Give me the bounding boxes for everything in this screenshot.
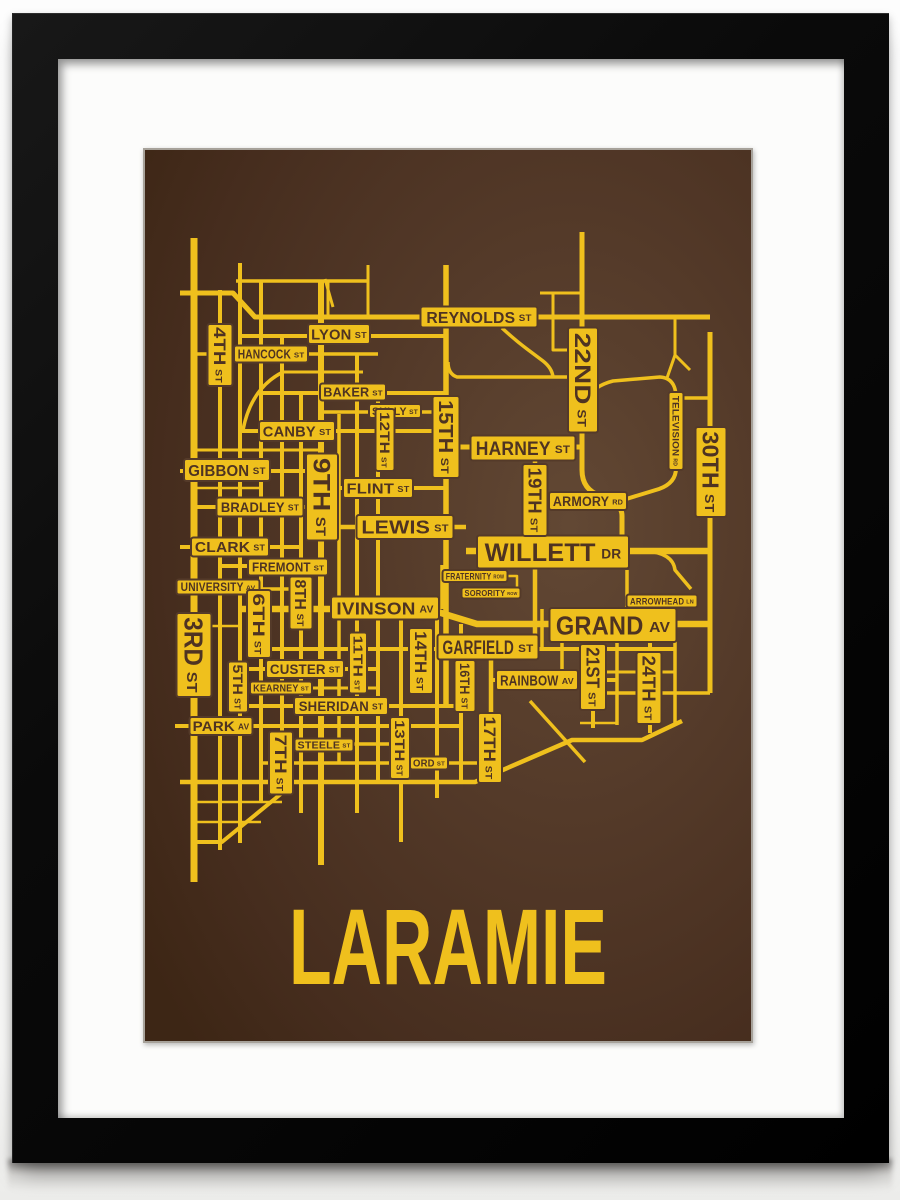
street-label-armory-rd: ARMORYRD (549, 492, 627, 510)
street-label-21st-st: 21STST (580, 644, 606, 710)
street-label-4th-st: 4THST (208, 324, 233, 386)
street-label-bradley-st: BRADLEYST (217, 498, 304, 517)
street-label-9th-st: 9THST (306, 454, 338, 541)
street-label-flint-st: FLINTST (343, 478, 413, 498)
street-label-22nd-st: 22NDST (568, 328, 598, 433)
street-label-baker-st: BAKERST (320, 384, 386, 401)
street-label-30th-st: 30THST (696, 427, 727, 517)
street-label-garfield-st: GARFIELDST (438, 635, 539, 660)
street-label-sorority-row: SORORITYROW (462, 588, 521, 599)
street-label-sheridan-st: SHERIDANST (294, 697, 388, 715)
street-label-arrowhead-ln: ARROWHEADLN (627, 595, 698, 608)
street-label-7th-st: 7THST (269, 732, 293, 795)
street-label-harney-st: HARNEYST (471, 436, 576, 461)
street-label-steele-st: STEELEST (295, 739, 354, 752)
street-label-rainbow-av: RAINBOWAV (496, 670, 578, 690)
street-label-13th-st: 13THST (390, 717, 410, 779)
street-label-16th-st: 16THST (455, 660, 476, 712)
street-label-17th-st: 17THST (478, 713, 502, 783)
street-label-clark-st: CLARKST (191, 538, 269, 557)
poster: REYNOLDSSTLYONSTHANCOCKSTBAKERSTSULLYSTC… (143, 148, 753, 1043)
street-label-5th-st: 5THST (228, 662, 248, 713)
street-label-fraternity-row: FRATERNITYROW (443, 570, 508, 582)
street-label-grand-av: GRANDAV (550, 608, 677, 642)
street-label-ivinson-av: IVINSONAV (331, 597, 439, 620)
street-label-8th-st: 8THST (290, 577, 313, 630)
street-label-lewis-st: LEWISST (357, 515, 454, 539)
street-label-willett-dr: WILLETTDR (477, 536, 629, 569)
street-label-hancock-st: HANCOCKST (234, 346, 308, 363)
street-label-11th-st: 11THST (349, 633, 367, 694)
street-label-reynolds-st: REYNOLDSST (421, 307, 538, 328)
street-map: REYNOLDSSTLYONSTHANCOCKSTBAKERSTSULLYSTC… (145, 150, 751, 1041)
street-label-fremont-st: FREMONTST (248, 559, 328, 576)
street-label-15th-st: 15THST (433, 396, 460, 478)
street-label-24th-st: 24THST (637, 652, 662, 724)
floor-shadow (8, 1159, 892, 1191)
street-label-custer-st: CUSTERST (266, 660, 344, 678)
street-label-kearney-st: KEARNEYST (250, 682, 312, 695)
street-label-12th-st: 12THST (376, 409, 395, 471)
street-label-14th-st: 14THST (409, 628, 433, 694)
street-label-3rd-st: 3RDST (177, 613, 212, 697)
street-label-lyon-st: LYONST (308, 324, 370, 344)
street-label-television-rd: TELEVISIONRD (669, 392, 684, 470)
poster-title: LARAMIE (289, 886, 607, 1007)
street-label-canby-st: CANBYST (259, 421, 335, 441)
street-label-6th-st: 6THST (247, 590, 271, 658)
street-label-park-av: PARKAV (190, 717, 253, 735)
street-label-19th-st: 19THST (523, 464, 548, 536)
street-label-gibbon-st: GIBBONST (184, 459, 270, 481)
svg-text:TELEVISIONRD: TELEVISIONRD (670, 396, 681, 466)
street-label-ord-st: ORDST (410, 757, 448, 770)
